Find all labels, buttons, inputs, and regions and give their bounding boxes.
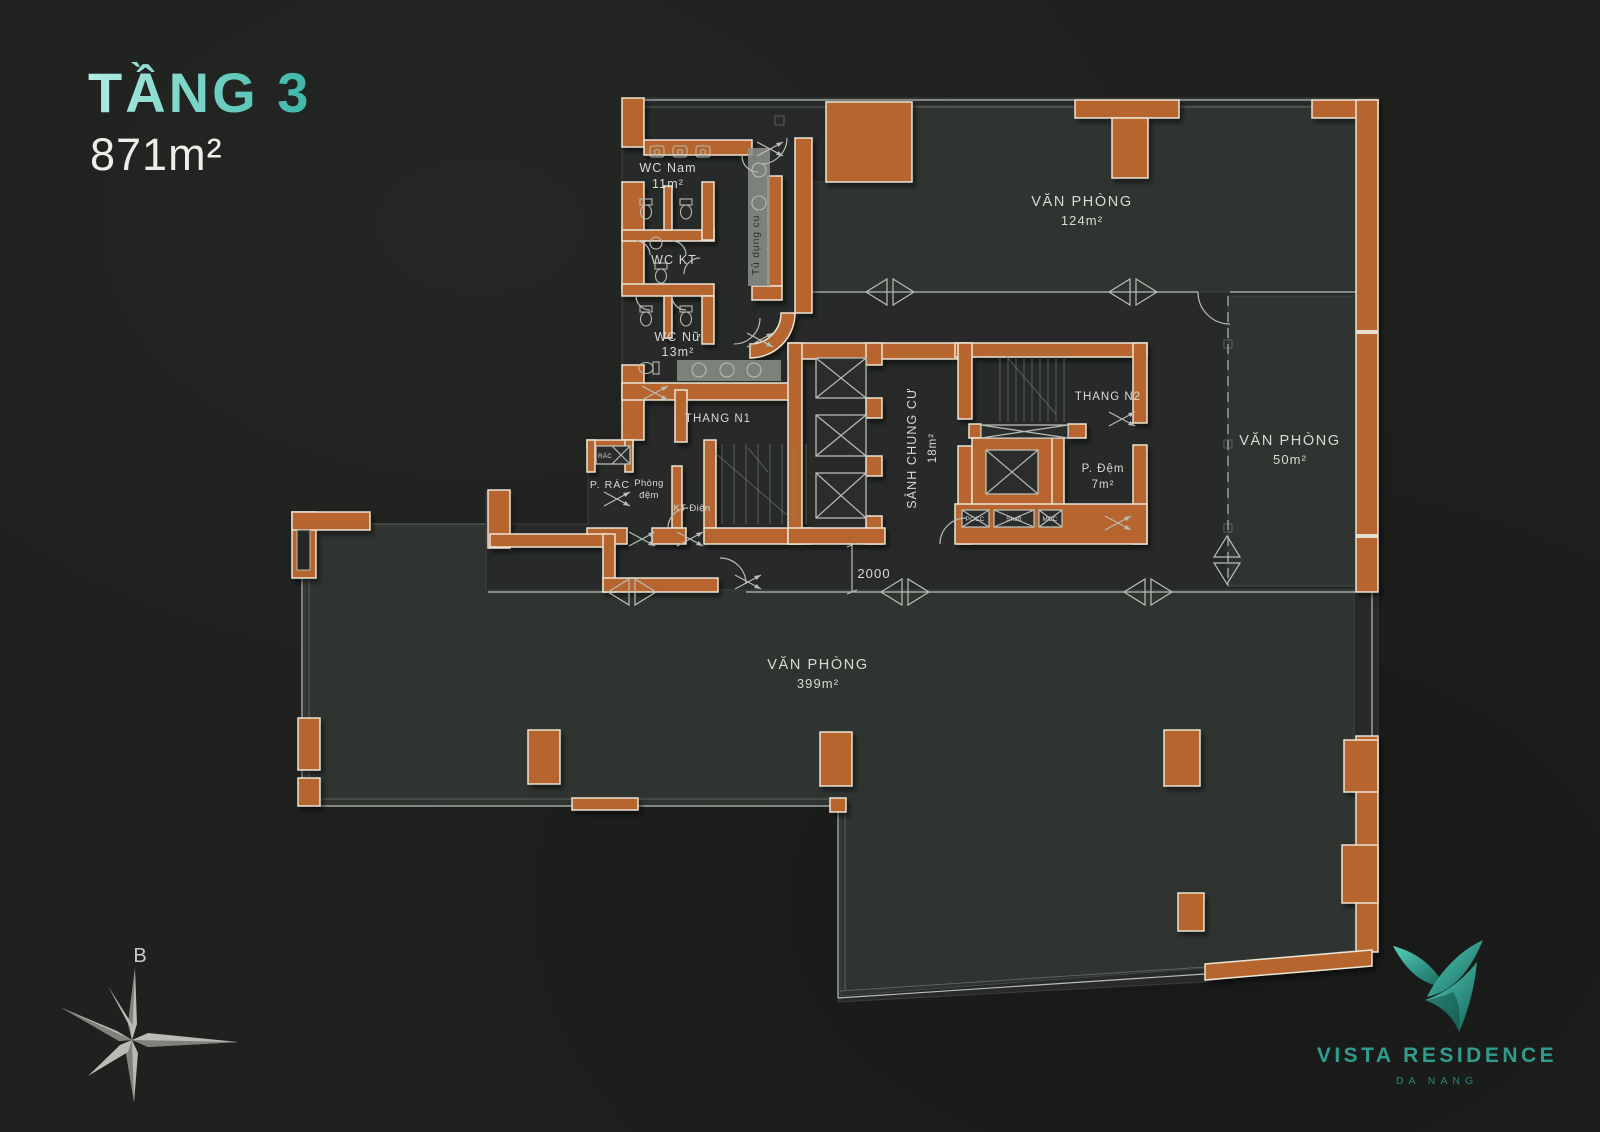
room-label-thang-n1: THANG N1	[685, 413, 751, 425]
technical-shaft-icon	[981, 425, 1068, 438]
elevator-shaft-icon	[816, 358, 866, 398]
room-area-sanh-chung-cu: 18m²	[927, 433, 939, 463]
elevator-shaft-icon	[816, 415, 866, 456]
room-label-sanh-chung-cu: SẢNH CHUNG CƯ	[904, 387, 919, 509]
floorplan-canvas: 2000 WC Nam 11m² Tủ dụng cụ WC KT WC Nữ …	[0, 0, 1600, 1132]
room-area-p-dem: 7m²	[1092, 479, 1115, 491]
dimension-label: 2000	[857, 566, 890, 581]
room-label-rac-shaft: RÁC	[598, 451, 612, 460]
elevator-shaft-icon	[816, 473, 866, 518]
floor-title: TẦNG 3	[88, 61, 311, 124]
room-label-van-phong-50: VĂN PHÒNG	[1239, 432, 1340, 449]
brand-name: VISTA RESIDENCE	[1317, 1044, 1557, 1067]
brand-location: DA NANG	[1396, 1075, 1478, 1087]
room-label-p-dem: P. Đệm	[1082, 463, 1125, 475]
room-label-phong-dem-1: Phòng	[634, 478, 663, 489]
shaft-label-shaft: Shaft	[1006, 516, 1022, 523]
wing-window	[297, 530, 310, 570]
room-label-wc-nu: WC Nữ	[654, 330, 701, 344]
floorplan: 2000 WC Nam 11m² Tủ dụng cụ WC KT WC Nữ …	[292, 98, 1378, 1002]
room-label-wc-nam: WC Nam	[639, 161, 696, 175]
room-label-wc-kt: WC KT	[651, 253, 697, 267]
room-area-van-phong-50: 50m²	[1273, 452, 1307, 467]
floor-area: 871m²	[90, 129, 223, 180]
room-label-p-rac: P. RÁC	[590, 478, 630, 491]
elevator-shaft-icon	[986, 450, 1038, 494]
room-area-wc-nu: 13m²	[662, 345, 695, 359]
room-label-van-phong-399: VĂN PHÒNG	[767, 656, 868, 673]
room-label-phong-dem-2: đệm	[639, 490, 659, 501]
shaft-label-mcc: MCC	[1043, 516, 1058, 523]
room-label-thang-n2: THANG N2	[1075, 391, 1141, 403]
compass-north-label: B	[133, 945, 146, 967]
vista-logo-icon	[1393, 940, 1483, 1032]
shaft-label-pccc: PCCC	[966, 516, 985, 523]
room-label-tu-dung-cu: Tủ dụng cụ	[750, 215, 762, 276]
title-block: TẦNG 3 871m²	[88, 61, 311, 180]
room-label-van-phong-124: VĂN PHÒNG	[1031, 193, 1132, 210]
room-area-wc-nam: 11m²	[652, 177, 684, 191]
compass-rose: B	[62, 945, 238, 1102]
room-area-van-phong-399: 399m²	[797, 676, 839, 691]
room-label-kt-dien: KT Điện	[674, 503, 711, 514]
room-area-van-phong-124: 124m²	[1061, 213, 1103, 228]
